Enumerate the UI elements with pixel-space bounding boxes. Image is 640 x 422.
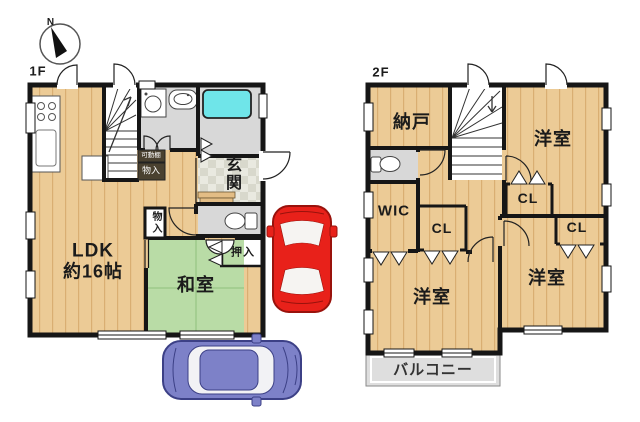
label-cl-ne: CL	[518, 191, 539, 205]
compass-north-label: N	[47, 18, 55, 28]
label-cl-se: CL	[567, 220, 588, 234]
toilet-fixture-2f	[371, 157, 400, 173]
toilet-fixture-1f	[225, 213, 257, 229]
kitchen-counter	[32, 96, 60, 172]
floor1-label: 1F	[29, 65, 46, 78]
label-wic: WIC	[378, 204, 410, 219]
north-compass	[40, 24, 80, 64]
label-oshiire: 押入	[231, 248, 255, 259]
label-genkan: 玄関	[223, 156, 239, 192]
wash-basin	[169, 90, 197, 109]
floorplan-canvas	[0, 0, 640, 422]
label-washitsu: 和室	[177, 276, 215, 294]
label-ldk: LDK 約16帖	[63, 242, 123, 283]
label-yoshitsu-ne: 洋室	[534, 130, 572, 148]
stairs-1f	[104, 87, 137, 182]
label-nando: 納戸	[393, 113, 431, 131]
label-kadoudana: 可動棚	[141, 153, 161, 160]
ldk-size: 約16帖	[63, 263, 123, 283]
label-yoshitsu-sw: 洋室	[413, 288, 451, 306]
label-monoire-closet: 物入	[150, 211, 160, 235]
genkan-step	[198, 192, 235, 198]
floor1-plan	[26, 64, 290, 339]
washing-machine	[141, 89, 166, 117]
label-cl-hall: CL	[432, 221, 453, 235]
label-monoire-shelf: 物入	[142, 167, 160, 176]
ldk-name: LDK	[63, 242, 123, 263]
label-balcony: バルコニー	[393, 363, 473, 378]
bathtub	[203, 90, 251, 118]
label-yoshitsu-se: 洋室	[528, 269, 566, 287]
floor2-label: 2F	[372, 66, 389, 79]
car-red	[267, 206, 337, 312]
floorplan-image: N 1F 2F LDK 約16帖 和室 玄関 押入 可動棚 物入 物入 納戸 洋…	[0, 0, 640, 422]
car-blue	[163, 334, 301, 406]
